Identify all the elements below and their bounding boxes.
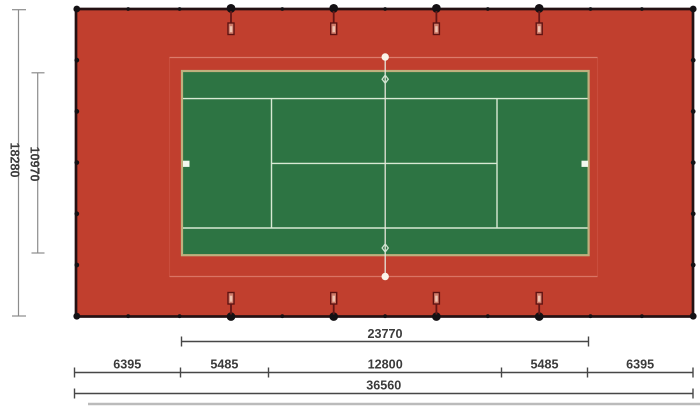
svg-text:6395: 6395 xyxy=(626,358,654,372)
svg-text:18280: 18280 xyxy=(8,142,22,177)
svg-text:36560: 36560 xyxy=(366,379,401,393)
svg-text:6395: 6395 xyxy=(113,358,141,372)
svg-text:23770: 23770 xyxy=(367,327,402,341)
svg-text:5485: 5485 xyxy=(530,358,558,372)
svg-text:5485: 5485 xyxy=(210,358,238,372)
svg-text:12800: 12800 xyxy=(368,358,403,372)
svg-text:10970: 10970 xyxy=(28,146,42,181)
